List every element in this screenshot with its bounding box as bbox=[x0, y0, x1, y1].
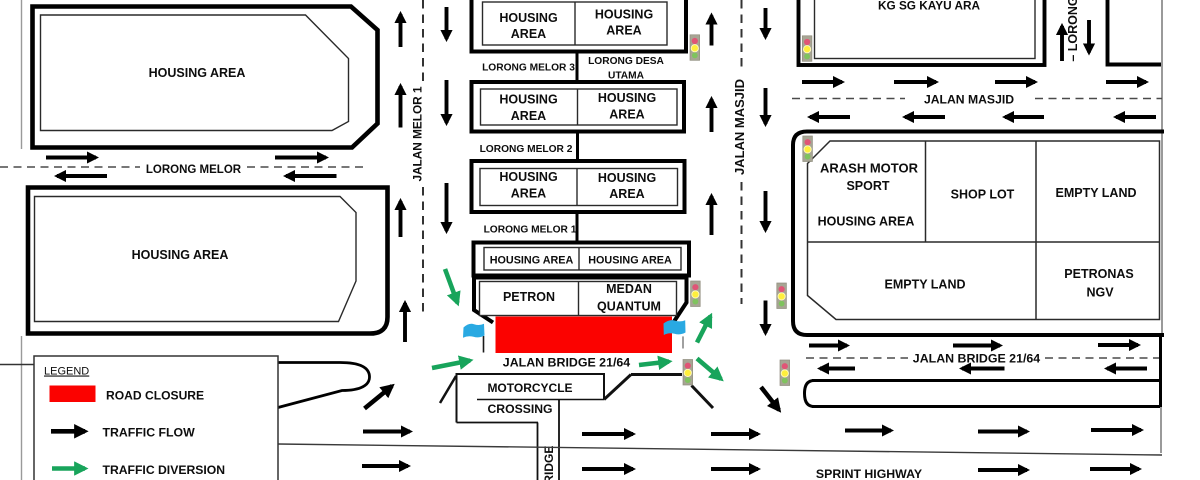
svg-text:HOUSING: HOUSING bbox=[598, 171, 656, 185]
svg-text:MOTORCYCLE: MOTORCYCLE bbox=[487, 381, 572, 395]
svg-text:KG SG KAYU ARA: KG SG KAYU ARA bbox=[878, 0, 981, 13]
svg-text:HOUSING: HOUSING bbox=[499, 11, 557, 25]
svg-text:AREA: AREA bbox=[609, 108, 644, 122]
svg-text:AREA: AREA bbox=[609, 187, 644, 201]
svg-text:CROSSING: CROSSING bbox=[487, 402, 552, 416]
svg-text:LEGEND: LEGEND bbox=[44, 366, 89, 378]
svg-text:HOUSING AREA: HOUSING AREA bbox=[490, 255, 574, 267]
svg-text:AREA: AREA bbox=[511, 109, 546, 123]
svg-text:HOUSING: HOUSING bbox=[595, 8, 653, 22]
svg-text:JALAN MASJID: JALAN MASJID bbox=[924, 93, 1014, 107]
svg-text:SHOP LOT: SHOP LOT bbox=[951, 188, 1015, 202]
svg-text:HOUSING: HOUSING bbox=[598, 91, 656, 105]
svg-text:HOUSING AREA: HOUSING AREA bbox=[132, 248, 229, 262]
svg-text:JALAN BRIDGE 21/64: JALAN BRIDGE 21/64 bbox=[913, 352, 1040, 366]
svg-text:AREA: AREA bbox=[511, 187, 546, 201]
svg-text:AREA: AREA bbox=[606, 24, 641, 38]
svg-text:HOUSING AREA: HOUSING AREA bbox=[588, 255, 672, 267]
svg-text:PETRONAS: PETRONAS bbox=[1064, 267, 1133, 281]
svg-text:LORONG MELOR 1: LORONG MELOR 1 bbox=[484, 225, 577, 236]
svg-text:JALAN MELOR 1: JALAN MELOR 1 bbox=[411, 86, 425, 181]
svg-text:UTAMA: UTAMA bbox=[608, 71, 645, 82]
svg-text:BRIDGE: BRIDGE bbox=[542, 446, 556, 480]
svg-text:HOUSING: HOUSING bbox=[499, 93, 557, 107]
svg-text:EMPTY LAND: EMPTY LAND bbox=[1055, 186, 1136, 200]
svg-text:HOUSING AREA: HOUSING AREA bbox=[149, 66, 246, 80]
svg-text:JALAN MASJID: JALAN MASJID bbox=[732, 79, 747, 175]
svg-text:NGV: NGV bbox=[1086, 286, 1114, 300]
svg-text:AREA: AREA bbox=[511, 27, 546, 41]
svg-text:JALAN BRIDGE 21/64: JALAN BRIDGE 21/64 bbox=[503, 356, 630, 370]
svg-text:ARASH MOTOR: ARASH MOTOR bbox=[820, 161, 919, 176]
svg-text:PETRON: PETRON bbox=[503, 290, 555, 304]
svg-text:HOUSING AREA: HOUSING AREA bbox=[818, 215, 915, 229]
svg-text:MEDAN: MEDAN bbox=[606, 282, 652, 296]
svg-text:TRAFFIC FLOW: TRAFFIC FLOW bbox=[103, 426, 196, 440]
svg-text:QUANTUM: QUANTUM bbox=[597, 300, 661, 314]
svg-text:LORONG MELOR: LORONG MELOR bbox=[146, 164, 242, 176]
svg-text:HOUSING: HOUSING bbox=[499, 170, 557, 184]
svg-text:LORONG MELOR 2: LORONG MELOR 2 bbox=[480, 144, 573, 155]
svg-text:SPRINT HIGHWAY: SPRINT HIGHWAY bbox=[816, 467, 922, 480]
svg-text:TRAFFIC DIVERSION: TRAFFIC DIVERSION bbox=[103, 463, 226, 477]
svg-text:LORONG MELOR 3: LORONG MELOR 3 bbox=[482, 63, 575, 74]
svg-text:LORONG DESA: LORONG DESA bbox=[588, 56, 664, 67]
svg-text:ROAD CLOSURE: ROAD CLOSURE bbox=[106, 389, 204, 403]
svg-text:– LORONG: – LORONG bbox=[1066, 0, 1080, 62]
svg-text:EMPTY LAND: EMPTY LAND bbox=[884, 278, 965, 292]
svg-text:SPORT: SPORT bbox=[846, 179, 889, 193]
